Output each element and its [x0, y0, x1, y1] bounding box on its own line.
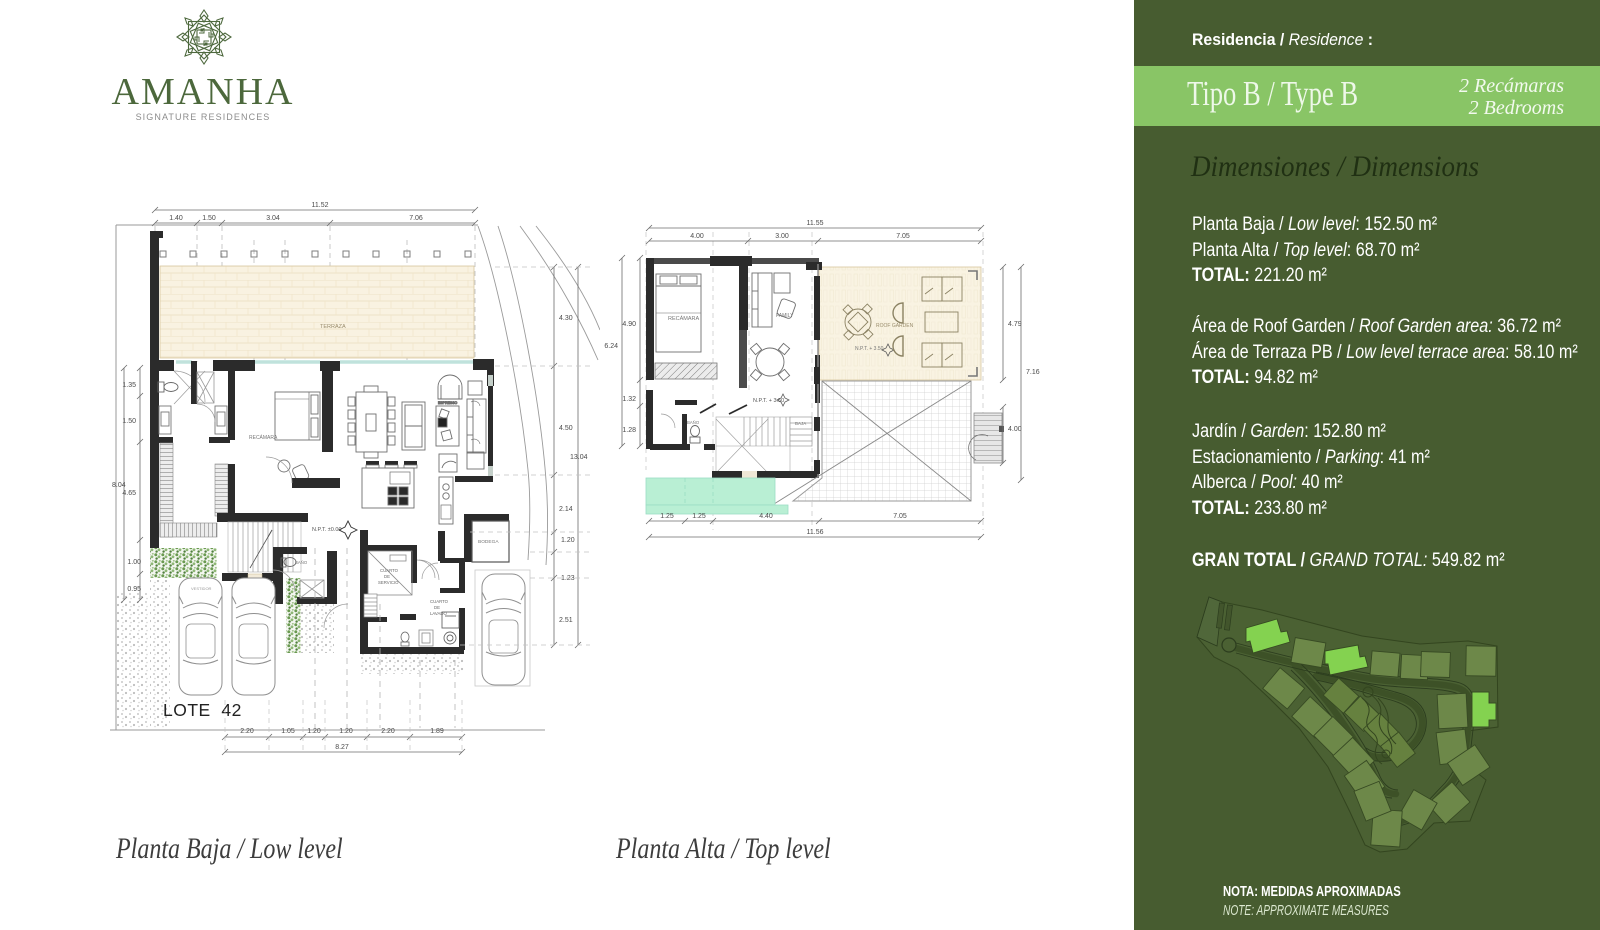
svg-text:CUARTO: CUARTO: [430, 599, 449, 604]
svg-text:1.25: 1.25: [692, 513, 706, 520]
svg-text:DE: DE: [384, 574, 390, 579]
svg-text:1.00: 1.00: [127, 559, 141, 566]
svg-text:7.06: 7.06: [409, 215, 423, 222]
svg-text:N.P.T. ±0.00: N.P.T. ±0.00: [312, 527, 342, 533]
svg-text:6.24: 6.24: [604, 343, 618, 350]
svg-text:0.95: 0.95: [127, 586, 141, 593]
svg-text:2.51: 2.51: [559, 617, 573, 624]
svg-text:2.20: 2.20: [381, 728, 395, 735]
svg-text:2.14: 2.14: [559, 506, 573, 513]
svg-text:3.04: 3.04: [266, 215, 280, 222]
svg-text:1.20: 1.20: [339, 728, 353, 735]
svg-text:VESTIDOR: VESTIDOR: [191, 586, 212, 591]
svg-text:8.27: 8.27: [335, 744, 349, 751]
svg-text:RECÁMARA: RECÁMARA: [249, 434, 278, 441]
svg-text:LAVADO: LAVADO: [430, 611, 447, 616]
svg-text:ROOF GARDEN: ROOF GARDEN: [876, 323, 914, 329]
svg-text:DE: DE: [434, 605, 440, 610]
svg-text:4.00: 4.00: [1008, 426, 1022, 433]
svg-text:2.20: 2.20: [240, 728, 254, 735]
svg-text:13.04: 13.04: [570, 454, 588, 461]
svg-text:4.00: 4.00: [690, 233, 704, 240]
svg-text:4.30: 4.30: [559, 315, 573, 322]
svg-text:1.32: 1.32: [622, 396, 636, 403]
svg-text:ESPRESSO: ESPRESSO: [438, 401, 458, 405]
svg-text:RECÁMARA: RECÁMARA: [668, 315, 700, 322]
svg-text:1.20: 1.20: [307, 728, 321, 735]
svg-text:7.05: 7.05: [893, 513, 907, 520]
svg-text:1.28: 1.28: [622, 427, 636, 434]
svg-text:11.56: 11.56: [807, 529, 824, 536]
svg-text:7.16: 7.16: [1026, 369, 1040, 376]
svg-text:1.89: 1.89: [430, 728, 444, 735]
svg-text:1.50: 1.50: [122, 418, 136, 425]
svg-text:TERRAZA: TERRAZA: [320, 324, 346, 330]
svg-text:4.90: 4.90: [622, 321, 636, 328]
svg-text:1.05: 1.05: [281, 728, 295, 735]
svg-text:BAÑO: BAÑO: [295, 560, 308, 565]
svg-text:1.50: 1.50: [202, 215, 216, 222]
svg-text:BAÑO: BAÑO: [687, 420, 700, 425]
svg-text:4.50: 4.50: [559, 425, 573, 432]
svg-text:BAJA: BAJA: [795, 421, 806, 426]
svg-text:SERVICIO: SERVICIO: [378, 580, 399, 585]
svg-text:N.P.T. + 3.50: N.P.T. + 3.50: [855, 346, 884, 352]
svg-text:BODEGA: BODEGA: [478, 539, 499, 545]
svg-text:1.20: 1.20: [561, 537, 575, 544]
svg-text:4.40: 4.40: [759, 513, 773, 520]
svg-text:11.52: 11.52: [312, 202, 329, 209]
svg-text:4.65: 4.65: [122, 490, 136, 497]
svg-text:8.04: 8.04: [112, 482, 126, 489]
svg-text:3.00: 3.00: [775, 233, 789, 240]
svg-text:1.40: 1.40: [169, 215, 183, 222]
svg-text:CUARTO: CUARTO: [380, 568, 399, 573]
svg-text:7.05: 7.05: [896, 233, 910, 240]
svg-text:1.25: 1.25: [660, 513, 674, 520]
svg-text:11.55: 11.55: [807, 220, 824, 227]
svg-text:1.35: 1.35: [122, 382, 136, 389]
svg-text:4.79: 4.79: [1008, 321, 1022, 328]
svg-text:LOTE 42: LOTE 42: [163, 700, 242, 720]
svg-text:1.23: 1.23: [561, 575, 575, 582]
